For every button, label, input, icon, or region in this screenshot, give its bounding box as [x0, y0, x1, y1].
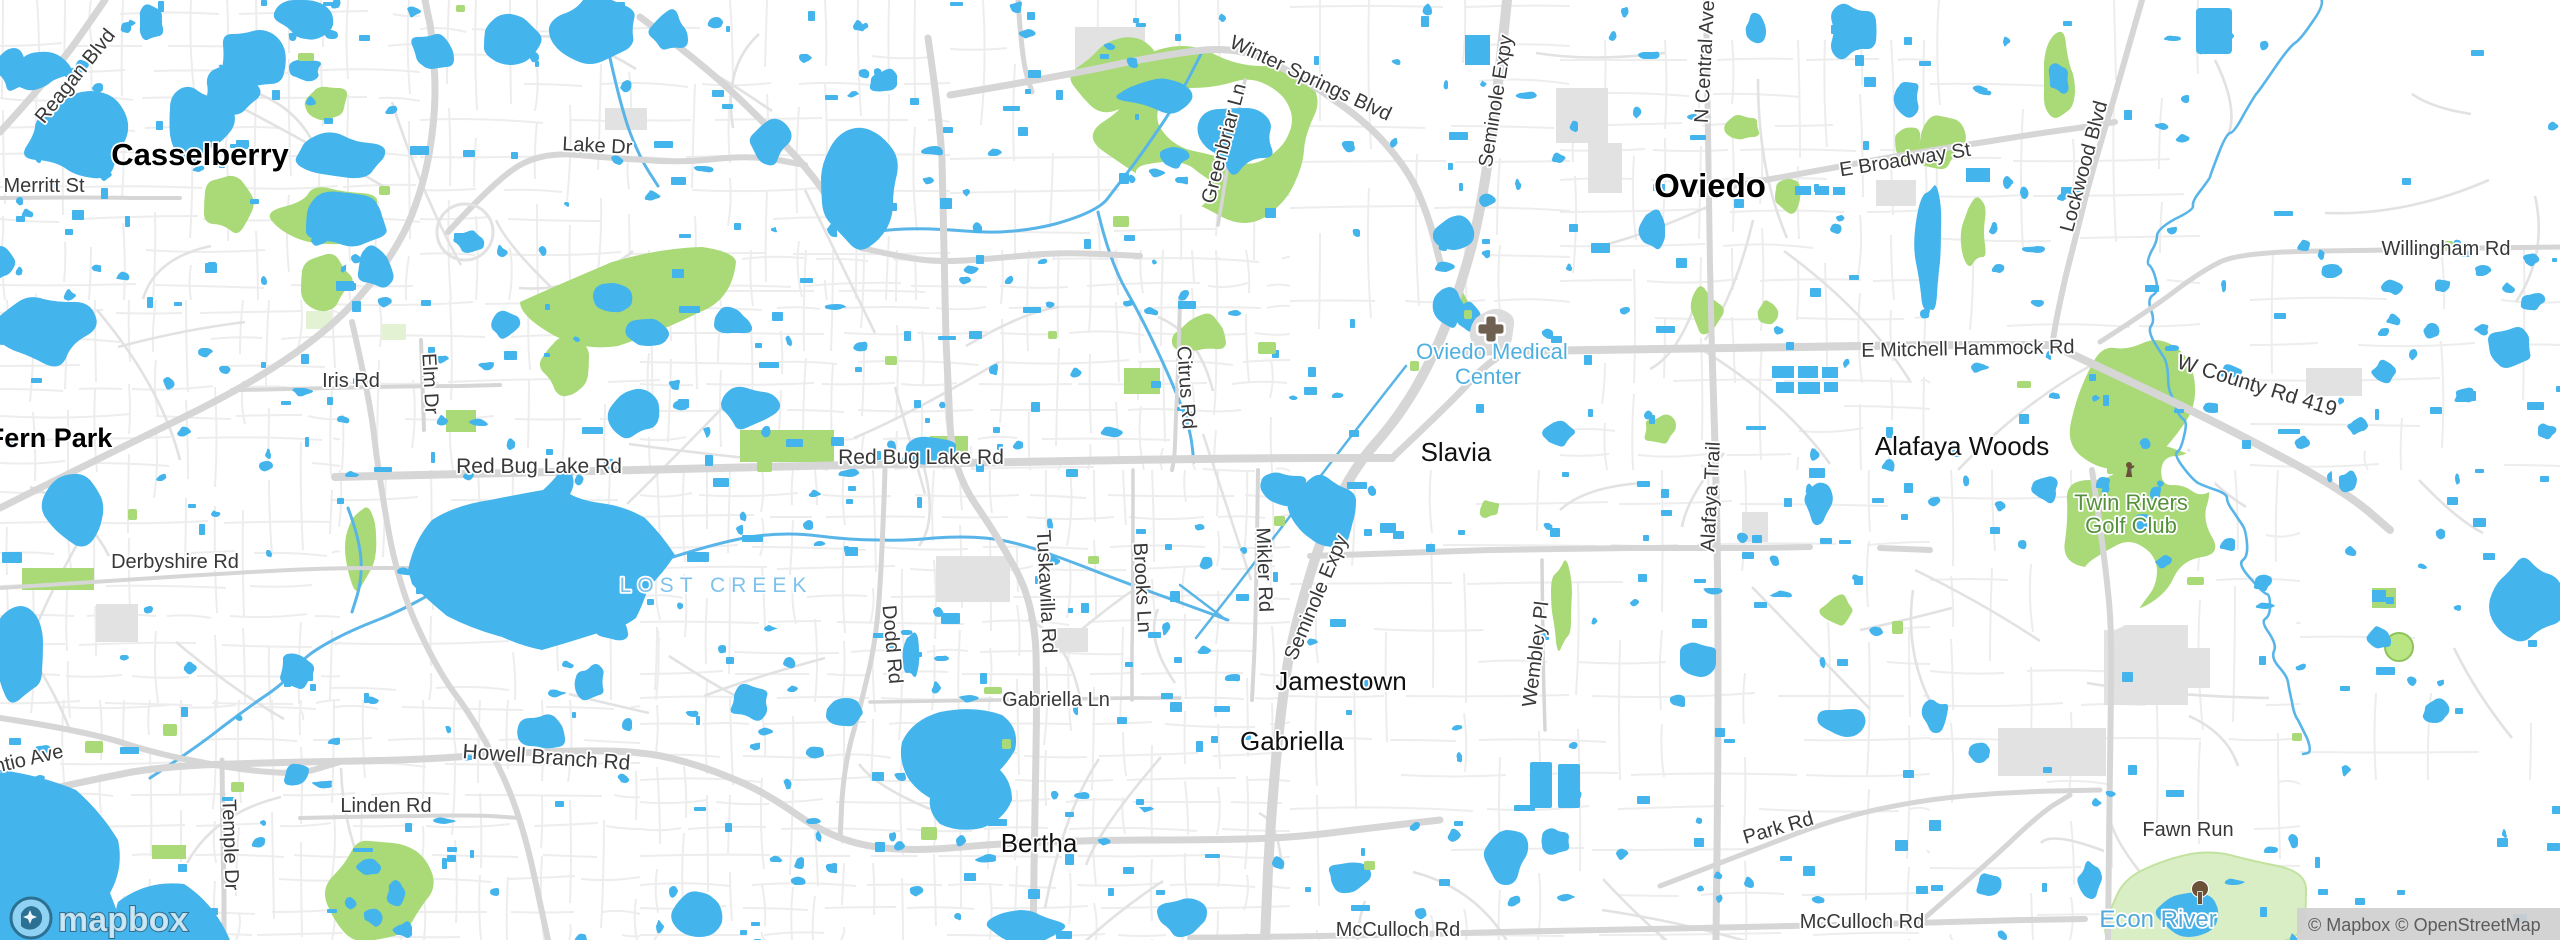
svg-text:Linden Rd: Linden Rd: [340, 795, 431, 817]
svg-text:Temple Dr: Temple Dr: [217, 799, 242, 891]
svg-text:© Mapbox © OpenStreetMap: © Mapbox © OpenStreetMap: [2308, 915, 2541, 935]
svg-text:Gabriella Ln: Gabriella Ln: [1002, 689, 1110, 711]
svg-text:Econ River: Econ River: [2099, 906, 2216, 933]
svg-text:Iris Rd: Iris Rd: [322, 370, 380, 392]
svg-text:mapbox: mapbox: [58, 901, 188, 939]
svg-text:Willingham Rd: Willingham Rd: [2382, 238, 2511, 260]
svg-text:Golf Club: Golf Club: [2085, 513, 2177, 538]
svg-text:Gabriella: Gabriella: [1240, 726, 1345, 756]
svg-text:Slavia: Slavia: [1421, 437, 1492, 467]
svg-text:McCulloch Rd: McCulloch Rd: [1800, 911, 1924, 933]
svg-text:Fern Park: Fern Park: [0, 423, 113, 453]
svg-text:Merritt St: Merritt St: [3, 175, 85, 197]
svg-text:Red Bug Lake Rd: Red Bug Lake Rd: [838, 446, 1004, 469]
svg-text:LOST CREEK: LOST CREEK: [620, 574, 813, 597]
svg-text:Alafaya Woods: Alafaya Woods: [1875, 431, 2049, 461]
svg-text:Center: Center: [1455, 364, 1521, 389]
svg-text:Jamestown: Jamestown: [1275, 666, 1407, 696]
svg-text:E Mitchell Hammock Rd: E Mitchell Hammock Rd: [1861, 336, 2075, 362]
svg-text:Fawn Run: Fawn Run: [2142, 819, 2233, 841]
svg-text:Bertha: Bertha: [1001, 828, 1078, 858]
svg-text:McCulloch Rd: McCulloch Rd: [1336, 919, 1460, 940]
svg-text:Casselberry: Casselberry: [111, 137, 289, 172]
svg-text:Lake Dr: Lake Dr: [562, 133, 633, 159]
svg-text:Mikler Rd: Mikler Rd: [1252, 527, 1277, 612]
svg-text:Elm Dr: Elm Dr: [417, 353, 442, 416]
svg-text:Twin Rivers: Twin Rivers: [2074, 490, 2188, 515]
svg-text:Oviedo Medical: Oviedo Medical: [1416, 339, 1568, 364]
svg-text:Brooks Ln: Brooks Ln: [1129, 542, 1156, 633]
svg-text:Oviedo: Oviedo: [1654, 167, 1766, 204]
svg-text:Derbyshire Rd: Derbyshire Rd: [111, 551, 239, 573]
svg-text:Red Bug Lake Rd: Red Bug Lake Rd: [456, 455, 622, 478]
